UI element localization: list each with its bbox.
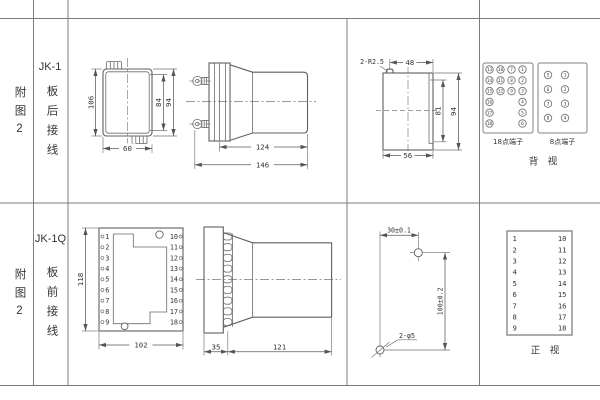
- t18-pin: 9: [510, 89, 513, 95]
- front-pin-left: 2: [105, 244, 109, 252]
- t8-pin: 3: [564, 101, 567, 107]
- t18-pin: 16: [487, 100, 493, 106]
- front-pin-left: 7: [105, 297, 109, 305]
- terminal-block-18: 13 10 7 1 14 11 8 2 15 12 9 3 16 4 17 5 …: [483, 63, 533, 146]
- front-pin-left: 5: [105, 276, 109, 284]
- front-pin-right: 17: [170, 308, 178, 316]
- t18-pin: 17: [487, 110, 493, 116]
- t8-pin: 6: [547, 87, 550, 93]
- front-pin-right: 16: [170, 297, 178, 305]
- mounting-hole: [121, 323, 128, 330]
- t8-pin: 7: [547, 101, 550, 107]
- t18-pin: 15: [487, 89, 493, 95]
- dim-106: 106: [87, 96, 96, 109]
- table-pin-right: 12: [558, 257, 567, 266]
- dim-60: 60: [123, 144, 132, 153]
- dim-30: 30±0.1: [387, 227, 411, 235]
- front-pin-right: 12: [170, 254, 178, 262]
- table-pin-left: 8: [513, 313, 517, 322]
- front-pin-left: 9: [105, 319, 109, 327]
- dim-100: 100±0.2: [437, 287, 445, 315]
- t18-pin: 5: [521, 110, 524, 116]
- terminal-screw: [190, 76, 212, 85]
- jk1q-pin-table: 110 211 312 413 514 615 716 817 918: [507, 231, 572, 335]
- t18-pin: 7: [510, 67, 513, 73]
- t18-pin: 3: [521, 89, 524, 95]
- t18-pin: 12: [498, 89, 504, 95]
- t18-pin: 18: [487, 121, 493, 127]
- table-pin-left: 1: [513, 234, 517, 243]
- t18-pin: 6: [521, 121, 524, 127]
- front-pin-left: 6: [105, 286, 109, 294]
- t18-pin: 13: [487, 67, 493, 73]
- dim-118: 118: [76, 273, 85, 286]
- table-pin-left: 4: [513, 268, 517, 277]
- row1-view-label: 背 视: [529, 156, 558, 168]
- t18-pin: 11: [498, 78, 504, 84]
- dim-94: 94: [164, 98, 173, 107]
- dim-94-rear: 94: [449, 107, 458, 116]
- table-pin-right: 11: [558, 245, 567, 254]
- t18-pin: 2: [521, 78, 524, 84]
- t8-pin: 8: [547, 116, 550, 122]
- jk1q-side-view: 35 121: [196, 227, 341, 356]
- front-pin-right: 14: [170, 276, 178, 284]
- front-pin-right: 11: [170, 244, 178, 252]
- table-pin-right: 13: [558, 268, 567, 277]
- jk1-front-view: 106 84 94 60: [87, 58, 178, 153]
- table-pin-left: 5: [513, 279, 517, 288]
- t18-pin: 4: [521, 100, 524, 106]
- dim-121: 121: [273, 342, 286, 351]
- t8-pin: 2: [564, 87, 567, 93]
- drawing-canvas: 106 84 94 60: [0, 0, 600, 400]
- table-pin-left: 7: [513, 301, 517, 310]
- table-pin-right: 18: [558, 324, 567, 333]
- table-pin-left: 9: [513, 324, 517, 333]
- t18-pin: 10: [498, 67, 504, 73]
- front-pin-right: 13: [170, 265, 178, 273]
- jk1q-drilling-template: 30±0.1 100±0.2 2-φ5: [372, 227, 451, 358]
- front-pin-left: 3: [105, 254, 109, 262]
- t18-pin: 1: [521, 67, 524, 73]
- t8-pin: 1: [564, 73, 567, 79]
- dim-124: 124: [256, 143, 270, 152]
- t8-pin: 5: [547, 73, 550, 79]
- t18-pin: 14: [487, 78, 493, 84]
- table-pin-right: 10: [558, 234, 567, 243]
- front-pin-left: 4: [105, 265, 109, 273]
- front-pin-right: 18: [170, 319, 178, 327]
- t8-pin: 4: [564, 116, 567, 122]
- dim-56: 56: [403, 151, 412, 160]
- row2-view-label: 正 视: [531, 345, 560, 357]
- front-pin-right: 15: [170, 286, 178, 294]
- dim-48: 48: [405, 58, 414, 67]
- dim-81: 81: [434, 107, 443, 116]
- technical-drawing-sheet: 附图2 JK-1 板后接线 附图2 JK-1Q 板前接线: [0, 0, 600, 400]
- note-2-R2.5: 2-R2.5: [360, 58, 384, 66]
- front-pin-left: 8: [105, 308, 109, 316]
- table-pin-right: 16: [558, 301, 567, 310]
- mounting-hole: [156, 231, 163, 238]
- dim-35: 35: [212, 342, 221, 351]
- front-pin-right: 10: [170, 233, 178, 241]
- jk1-rear-section-view: 2-R2.5 48 81 94 56: [360, 58, 462, 160]
- table-pin-right: 15: [558, 290, 567, 299]
- table-grid: [0, 0, 600, 386]
- table-pin-left: 6: [513, 290, 517, 299]
- dim-84: 84: [154, 98, 163, 107]
- jk1q-front-view: 1 2 3 4 5 6 7 8 9 10 11 12 13 14 15 16 1…: [76, 228, 183, 350]
- drill-hole: [414, 249, 422, 257]
- terminal-block-8: 5 1 6 2 7 3 8 4 8点端子: [538, 63, 587, 146]
- front-pin-left: 1: [105, 233, 109, 241]
- dim-102: 102: [134, 341, 147, 350]
- hole-note: 2-φ5: [399, 332, 415, 340]
- terminal8-label: 8点端子: [550, 137, 575, 146]
- t18-pin: 8: [510, 78, 513, 84]
- table-pin-left: 2: [513, 245, 517, 254]
- jk1-side-view: 124 146: [186, 63, 316, 169]
- dim-146: 146: [256, 160, 269, 169]
- table-pin-left: 3: [513, 257, 517, 266]
- table-pin-right: 17: [558, 313, 567, 322]
- terminal18-label: 18点端子: [493, 137, 523, 146]
- terminal-screw: [190, 119, 212, 128]
- table-pin-right: 14: [558, 279, 567, 288]
